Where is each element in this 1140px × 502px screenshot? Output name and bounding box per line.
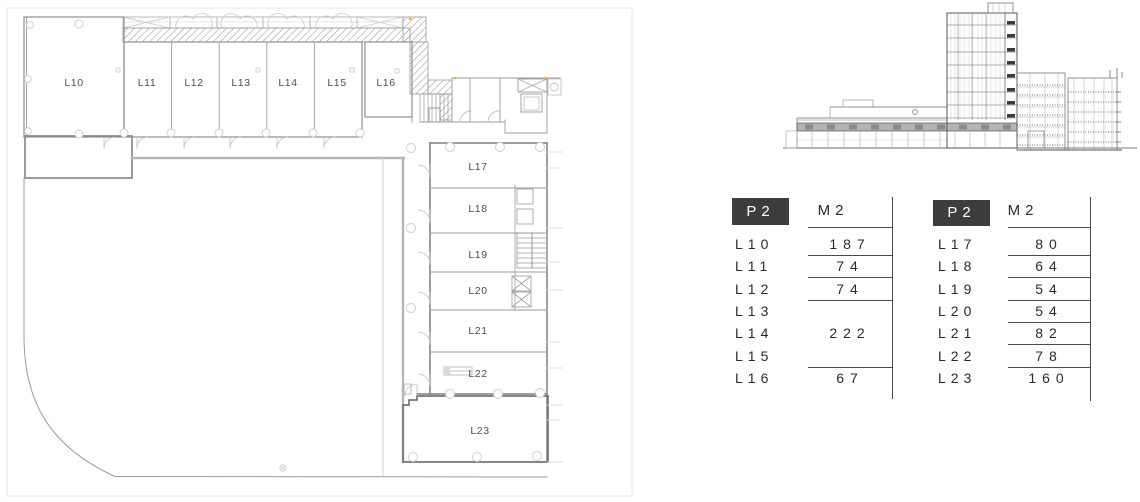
- room-labels: L10 L11 L12 L13 L14 L15 L16 L17 L18 L19 …: [64, 77, 489, 437]
- door-arcs-top: [104, 137, 335, 148]
- column-rule: [1090, 197, 1091, 401]
- room-label-l21: L21: [468, 325, 487, 337]
- floor-badge: P2: [933, 200, 990, 226]
- room-cell: L10: [735, 233, 773, 255]
- area-cell: 74: [808, 255, 892, 278]
- room-cell: L16: [735, 367, 773, 389]
- room-label-l20: L20: [468, 285, 487, 297]
- area-table-left: P2 M2 L10 L11 L12 L13 L14 L15 L16 187 74…: [715, 194, 900, 409]
- column-rule: [892, 197, 893, 399]
- floor-plan: L10 L11 L12 L13 L14 L15 L16 L17 L18 L19 …: [7, 8, 632, 496]
- room-cell: L11: [735, 255, 772, 277]
- unit-header: M2: [1000, 202, 1046, 219]
- room-label-l11: L11: [138, 77, 157, 89]
- corridor-walls: [132, 158, 404, 476]
- room-label-l23: L23: [470, 425, 489, 437]
- area-cell: 160: [1008, 367, 1090, 389]
- survey-dot: [544, 77, 547, 80]
- room-cell: L22: [938, 345, 976, 367]
- midrise-blocks: [1017, 68, 1122, 150]
- window-bays: [123, 13, 403, 28]
- area-cell: 82: [1008, 322, 1090, 345]
- podium: [786, 100, 1017, 148]
- room-label-l17: L17: [468, 161, 487, 173]
- stair-upper: [420, 94, 448, 122]
- area-cell: 187: [808, 233, 892, 256]
- unit-header: M2: [810, 202, 856, 219]
- survey-dot: [409, 18, 412, 21]
- brochure-page: L10 L11 L12 L13 L14 L15 L16 L17 L18 L19 …: [0, 0, 1140, 502]
- room-cell: L13: [735, 300, 773, 322]
- room-cell: L19: [938, 278, 976, 300]
- right-strip: [547, 152, 562, 462]
- area-cell: 74: [808, 278, 892, 301]
- room-cell: L17: [938, 233, 976, 255]
- elevation-section: [783, 3, 1137, 150]
- balcony-plants: [1007, 21, 1015, 118]
- room-cell: L14: [735, 322, 773, 344]
- area-cell: 80: [1008, 233, 1090, 256]
- room-cell: L18: [938, 255, 976, 277]
- survey-dot: [454, 77, 457, 80]
- hatched-walls: [123, 17, 452, 120]
- room-cell: L15: [735, 345, 773, 367]
- room-label-l18: L18: [468, 203, 487, 215]
- room-label-l15: L15: [327, 77, 346, 89]
- room-label-l22: L22: [468, 368, 487, 380]
- room-cell: L20: [938, 300, 976, 322]
- room-below-l10: [25, 136, 132, 178]
- door-arcs-right: [404, 165, 430, 396]
- area-cell-merged: 222: [808, 300, 892, 368]
- room-label-l19: L19: [468, 249, 487, 261]
- room-label-l12: L12: [184, 77, 203, 89]
- floor-badge: P2: [732, 198, 789, 225]
- room-label-l16: L16: [376, 77, 395, 89]
- area-cell: 78: [1008, 345, 1090, 368]
- room-label-l14: L14: [278, 77, 297, 89]
- plan-frame: [7, 8, 632, 496]
- area-cell: 67: [808, 367, 892, 389]
- core-elements: [444, 185, 547, 375]
- area-cell: 54: [1008, 300, 1090, 323]
- area-cell: 54: [1008, 278, 1090, 301]
- room-cell: L21: [938, 322, 976, 344]
- room-label-l13: L13: [231, 77, 250, 89]
- room-label-l10: L10: [64, 77, 83, 89]
- room-cell: L23: [938, 367, 976, 389]
- room-cell: L12: [735, 278, 773, 300]
- header-rule: [808, 227, 892, 228]
- header-rule: [1008, 227, 1090, 228]
- area-table-right: P2 M2 L17 L18 L19 L20 L21 L22 L23 80 64 …: [916, 194, 1101, 409]
- right-rooms: [417, 143, 547, 462]
- area-cell: 64: [1008, 255, 1090, 278]
